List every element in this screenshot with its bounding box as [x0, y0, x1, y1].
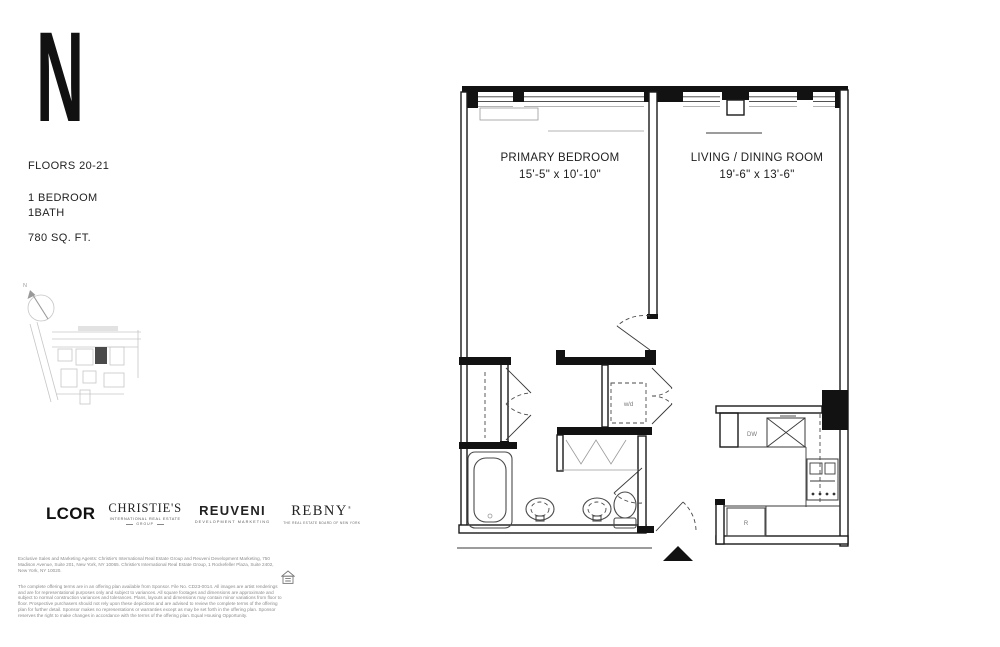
- rebny-subtext: THE REAL ESTATE BOARD OF NEW YORK: [283, 521, 360, 525]
- disclaimer-paragraph-1: Exclusive Sales and Marketing Agents: Ch…: [18, 556, 274, 573]
- christies-group-text: GROUP: [108, 522, 181, 526]
- room-labels: PRIMARY BEDROOM 15'-5" x 10'-10" LIVING …: [500, 152, 823, 181]
- christies-subtext: INTERNATIONAL REAL ESTATE: [108, 517, 181, 521]
- washer-dryer-label: w/d: [623, 402, 633, 408]
- primary-bedroom-dims: 15'-5" x 10'-10": [519, 169, 601, 181]
- rebny-logo: REBNY® THE REAL ESTATE BOARD OF NEW YORK: [283, 503, 360, 525]
- closet-shelf-zigzag: [566, 440, 626, 464]
- bathtub: [468, 452, 512, 528]
- reuveni-wordmark: REUVENI: [195, 503, 270, 518]
- entry-marker-triangle: [663, 546, 693, 561]
- bathroom-sink: [526, 498, 554, 521]
- christies-logo: CHRISTIE'S INTERNATIONAL REAL ESTATE GRO…: [108, 501, 181, 526]
- lcor-logo: LCOR: [46, 504, 95, 524]
- disclaimer-paragraph-2: The complete offering terms are in an of…: [18, 584, 286, 618]
- reuveni-logo: REUVENI DEVELOPMENT MARKETING: [195, 503, 270, 524]
- kitchen-counter: [720, 413, 840, 536]
- dishwasher-label: DW: [747, 432, 757, 438]
- primary-bedroom-label: PRIMARY BEDROOM: [500, 152, 619, 164]
- floor-plan-svg: w/d: [0, 0, 1000, 647]
- reuveni-subtext: DEVELOPMENT MARKETING: [195, 520, 270, 524]
- christies-wordmark: CHRISTIE'S: [108, 501, 181, 516]
- rebny-wordmark: REBNY®: [283, 503, 360, 520]
- bathroom-sink: [583, 498, 611, 521]
- equal-housing-icon: [281, 570, 295, 585]
- partner-logos: LCOR CHRISTIE'S INTERNATIONAL REAL ESTAT…: [46, 501, 360, 526]
- column: [822, 390, 848, 430]
- rebny-registered-mark: ®: [348, 505, 353, 510]
- refrigerator: R: [727, 508, 765, 536]
- refrigerator-label: R: [744, 521, 749, 527]
- kitchen-sink: [767, 416, 805, 447]
- rebny-text: REBNY: [291, 503, 348, 519]
- living-dining-label: LIVING / DINING ROOM: [691, 152, 824, 164]
- range: [807, 459, 838, 500]
- toilet: [614, 492, 636, 528]
- floor-plan-sheet: N FLOORS 20-21 1 BEDROOM 1BATH 780 SQ. F…: [0, 0, 1000, 647]
- living-dining-dims: 19'-6" x 13'-6": [719, 169, 794, 181]
